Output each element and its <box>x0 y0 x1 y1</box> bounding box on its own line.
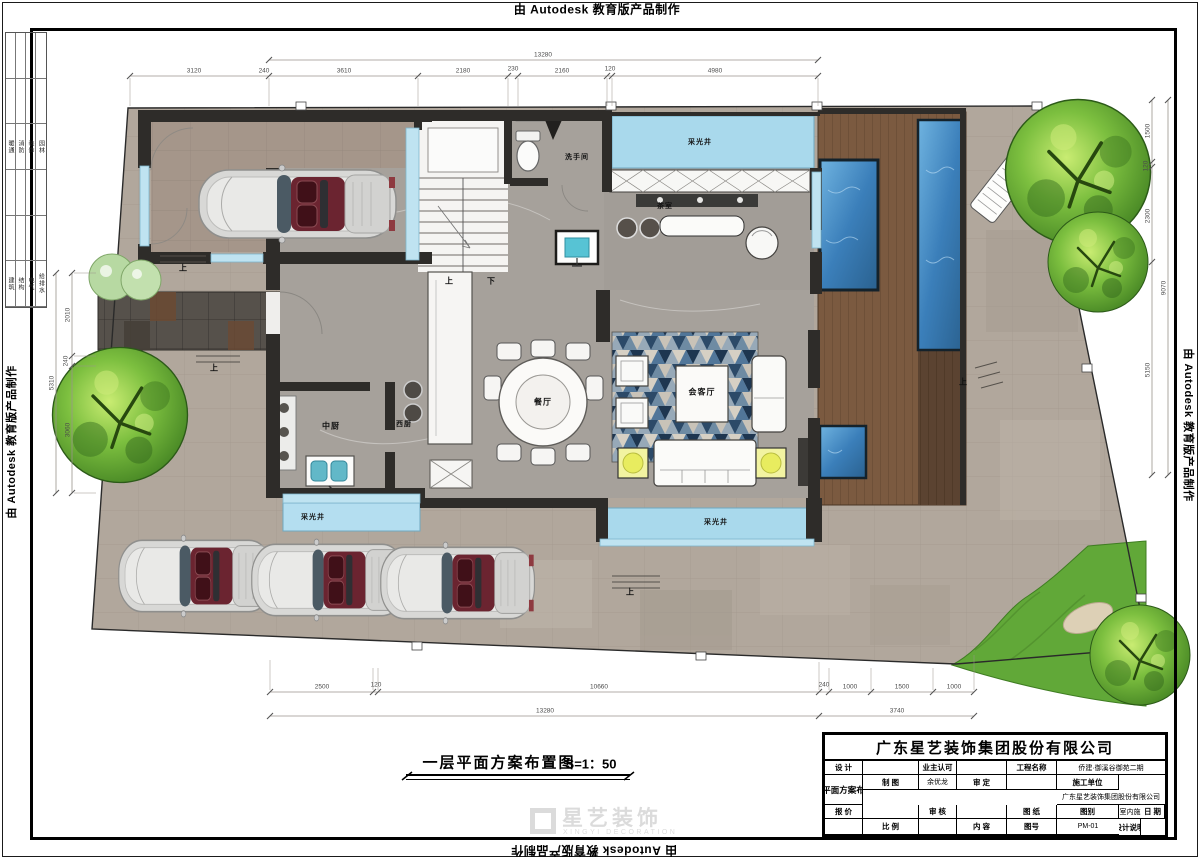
dim-label: 1000 <box>947 684 961 691</box>
margin-label: 给排水 <box>37 273 46 294</box>
tb-note-label: 设计说明 <box>1119 819 1141 835</box>
room-label-dining: 餐厅 <box>534 397 552 408</box>
up-marker: 上 <box>626 587 634 598</box>
stairs-down-marker: 下 <box>487 276 495 287</box>
title-block-company: 广东星艺装饰集团股份有限公司 <box>825 735 1165 761</box>
dim-label: 3120 <box>187 68 201 75</box>
tb-sheet-value: 一层平面方案布置图 <box>825 775 863 805</box>
tb-check-label: 审 核 <box>919 805 957 819</box>
tb-number-value: PM-01 <box>1057 819 1119 835</box>
plan-caption-scale: S=1：50 <box>566 754 617 773</box>
tb-contractor-label: 施工单位 <box>1057 775 1119 790</box>
watermark-logo-icon <box>530 808 556 834</box>
margin-label: 结构 <box>16 277 25 291</box>
plan-caption-title: 一层平面方案布置图 <box>422 752 575 773</box>
margin-label: 电气 <box>26 277 35 291</box>
tb-project-value: 侨建·御溪谷御苑二期 <box>1057 761 1165 775</box>
tb-check-value <box>957 805 1007 819</box>
dim-label-total: 13280 <box>534 52 552 59</box>
dim-label: 2500 <box>315 684 329 691</box>
dim-label: 240 <box>63 356 70 367</box>
tb-owner-label: 业主认可 <box>919 761 957 775</box>
up-marker: 上 <box>959 377 967 388</box>
drawing-sheet: 由 Autodesk 教育版产品制作 由 Autodesk 教育版产品制作 由 … <box>0 0 1200 859</box>
tb-design-label: 设 计 <box>825 761 863 775</box>
dim-label: 240 <box>259 68 270 75</box>
tb-draft-value: 余优龙 <box>919 775 957 790</box>
margin-label: 装饰 <box>26 140 35 154</box>
tb-contractor-value: 广东星艺装饰集团股份有限公司 <box>1057 790 1165 805</box>
margin-discipline-table: 暖通 消防 装饰 园林 建筑 结构 电气 给排水 <box>5 32 47 308</box>
autodesk-stamp-left: 由 Autodesk 教育版产品制作 <box>3 365 19 518</box>
tb-draft-label: 制 图 <box>863 775 919 790</box>
dim-label-total: 13280 <box>536 708 554 715</box>
tb-scale-label: 比 例 <box>863 819 919 835</box>
tb-quote-value <box>863 805 919 819</box>
dim-label: 120 <box>1143 161 1150 172</box>
up-marker: 上 <box>210 363 218 374</box>
dim-label: 3060 <box>65 423 72 437</box>
tb-content-label: 内 容 <box>957 819 1007 835</box>
stairs-up-marker: 上 <box>445 276 453 287</box>
tb-date-value <box>825 819 863 835</box>
dim-label: 10660 <box>590 684 608 691</box>
tb-sheet-label: 图 纸 <box>1007 805 1057 819</box>
tb-design-value <box>863 761 919 775</box>
dim-label: 1500 <box>1145 124 1152 138</box>
tb-approve-value <box>1007 775 1057 790</box>
up-marker: 上 <box>179 263 187 274</box>
watermark-cn: 星艺装饰 <box>562 802 662 832</box>
dim-label: 120 <box>605 66 616 73</box>
tb-category-value: 室内施 <box>1119 805 1141 819</box>
dim-label-total: 3740 <box>890 708 904 715</box>
room-label-tea-room: 茶室 <box>657 201 673 211</box>
room-label-skylight-bl: 采光井 <box>301 512 325 522</box>
room-label-bathroom: 洗手间 <box>565 152 589 162</box>
margin-label: 消防 <box>16 140 25 154</box>
dim-label: 5150 <box>1145 363 1152 377</box>
dim-label: 2160 <box>555 68 569 75</box>
dim-label: 3610 <box>337 68 351 75</box>
margin-label: 园林 <box>37 140 46 154</box>
autodesk-stamp-right: 由 Autodesk 教育版产品制作 <box>1181 348 1197 501</box>
dim-label: 240 <box>819 682 830 689</box>
room-label-skylight-top: 采光井 <box>688 137 712 147</box>
margin-label: 建筑 <box>6 277 15 291</box>
dim-label: 4980 <box>708 68 722 75</box>
dim-label: 2010 <box>65 308 72 322</box>
dim-label: 120 <box>371 682 382 689</box>
tb-date-label: 日 期 <box>1141 805 1165 819</box>
tb-owner-value <box>957 761 1007 775</box>
margin-label: 暖通 <box>6 140 15 154</box>
room-label-living: 会客厅 <box>689 387 716 398</box>
dim-label-total: 9070 <box>1161 281 1168 295</box>
dim-label: 1000 <box>843 684 857 691</box>
dim-label-total: 5310 <box>49 376 56 390</box>
room-label-kitchen-cn: 中厨 <box>322 421 340 432</box>
drawing-frame <box>30 28 1177 840</box>
company-watermark: 星艺装饰 XINGYI DECORATION <box>530 800 680 850</box>
tb-project-label: 工程名称 <box>1007 761 1057 775</box>
tb-approve-label: 审 定 <box>957 775 1007 790</box>
tb-category-label: 图别 <box>1057 805 1119 819</box>
room-label-skylight-mid: 采光井 <box>704 517 728 527</box>
dim-label: 230 <box>508 66 519 73</box>
tb-scale-value <box>919 819 957 835</box>
autodesk-stamp-top: 由 Autodesk 教育版产品制作 <box>514 1 680 18</box>
caption-underline <box>406 774 630 781</box>
dim-label: 2180 <box>456 68 470 75</box>
title-block: 广东星艺装饰集团股份有限公司 设 计 业主认可 工程名称 侨建·御溪谷御苑二期 … <box>822 732 1168 838</box>
watermark-en: XINGYI DECORATION <box>563 829 677 836</box>
room-label-kitchen-west: 西厨 <box>396 419 412 429</box>
tb-number-label: 图号 <box>1007 819 1057 835</box>
dim-label: 1500 <box>895 684 909 691</box>
dim-label: 2300 <box>1145 209 1152 223</box>
tb-quote-label: 报 价 <box>825 805 863 819</box>
